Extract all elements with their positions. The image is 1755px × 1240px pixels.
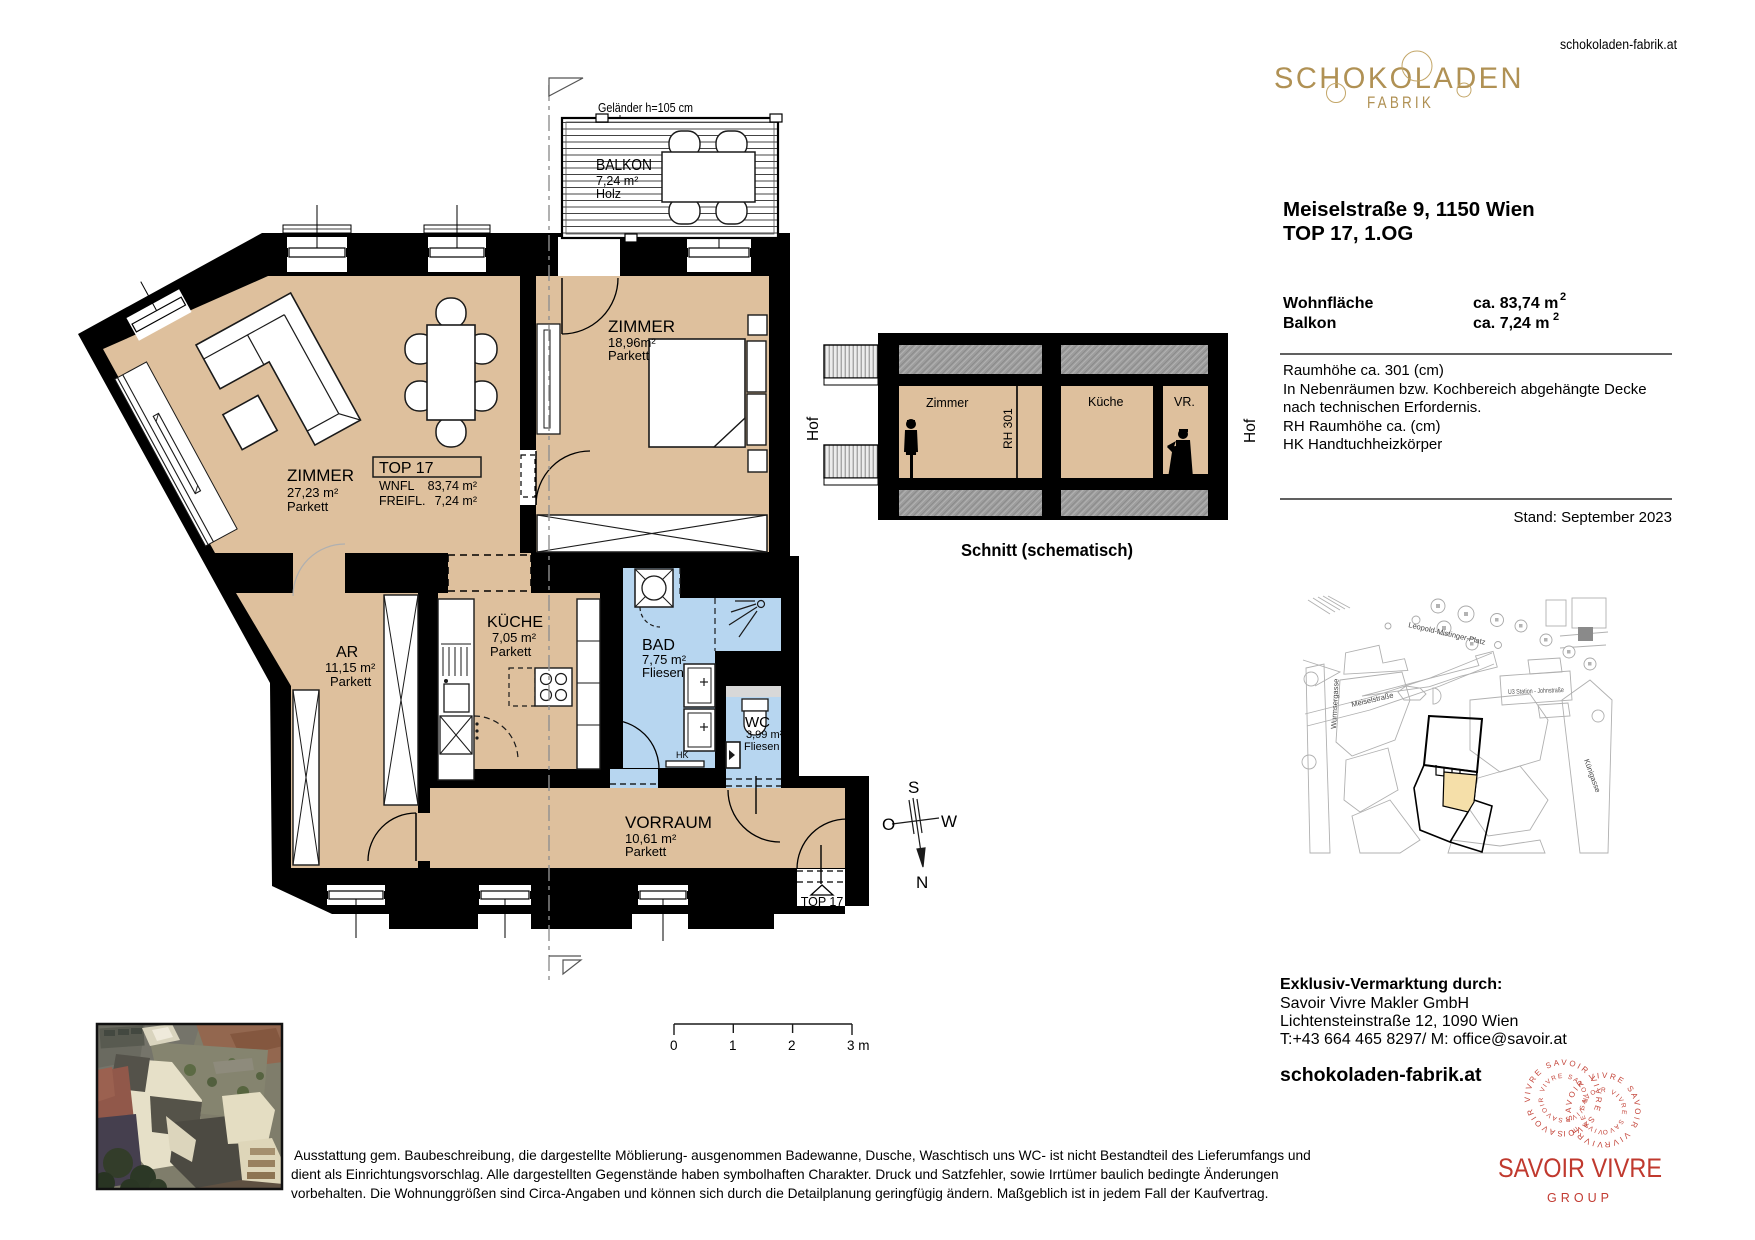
svg-text:Fliesen: Fliesen [744, 741, 779, 753]
svg-text:2: 2 [788, 1038, 796, 1053]
svg-text:TOP 17, 1.OG: TOP 17, 1.OG [1283, 222, 1413, 245]
svg-text:Exklusiv-Vermarktung durch:: Exklusiv-Vermarktung durch: [1280, 976, 1502, 993]
svg-text:In Nebenräumen bzw. Kochbereic: In Nebenräumen bzw. Kochbereich abgehäng… [1283, 381, 1647, 398]
svg-text:Savoir Vivre Makler GmbH: Savoir Vivre Makler GmbH [1280, 995, 1469, 1012]
svg-text:dient als Einrichtungsvorschla: dient als Einrichtungsvorschlag. Alle da… [291, 1167, 1279, 1182]
svg-text:1: 1 [729, 1038, 737, 1053]
svg-text:2: 2 [1553, 311, 1559, 323]
svg-text:TOP 17: TOP 17 [379, 460, 434, 477]
svg-text:S: S [908, 778, 919, 797]
svg-text:0: 0 [670, 1038, 678, 1053]
svg-text:ZIMMER: ZIMMER [608, 317, 675, 336]
svg-text:KÜCHE: KÜCHE [487, 613, 543, 631]
svg-text:N: N [916, 873, 928, 892]
svg-text:TOP 17: TOP 17 [801, 895, 844, 909]
svg-text:T:+43 664 465 8297/ M: office@: T:+43 664 465 8297/ M: office@savoir.at [1280, 1031, 1567, 1048]
svg-text:27,23 m²: 27,23 m² [287, 485, 339, 500]
svg-text:GROUP: GROUP [1547, 1191, 1613, 1205]
svg-text:Hof: Hof [805, 416, 822, 441]
svg-text:Meiselstraße 9, 1150 Wien: Meiselstraße 9, 1150 Wien [1283, 198, 1535, 221]
svg-text:RH 301: RH 301 [1001, 408, 1015, 449]
svg-text:Geländer h=105 cm: Geländer h=105 cm [598, 101, 693, 115]
svg-text:schokoladen-fabrik.at: schokoladen-fabrik.at [1560, 37, 1677, 52]
svg-text:vorbehalten. Die Wohnunggrößen: vorbehalten. Die Wohnunggrößen sind Circ… [291, 1186, 1268, 1201]
svg-text:O: O [882, 815, 895, 834]
svg-text:7,05 m²: 7,05 m² [492, 630, 537, 645]
svg-text:3 m: 3 m [847, 1038, 870, 1053]
svg-text:FREIFL.: FREIFL. [379, 494, 426, 508]
svg-text:Lichtensteinstraße 12, 1090 Wi: Lichtensteinstraße 12, 1090 Wien [1280, 1013, 1518, 1030]
svg-text:SCHOKOLADEN: SCHOKOLADEN [1274, 62, 1524, 95]
svg-text:Raumhöhe ca. 301 (cm): Raumhöhe ca. 301 (cm) [1283, 362, 1444, 379]
svg-text:nach technischen Erfordernis.: nach technischen Erfordernis. [1283, 399, 1481, 416]
svg-text:VR.: VR. [1174, 395, 1195, 409]
svg-text:AR: AR [336, 644, 358, 661]
svg-text:Parkett: Parkett [330, 674, 372, 689]
svg-text:VORRAUM: VORRAUM [625, 813, 712, 832]
svg-text:HK Handtuchheizkörper: HK Handtuchheizkörper [1283, 436, 1442, 453]
svg-text:7,24 m²: 7,24 m² [596, 174, 638, 188]
svg-text:ca. 7,24 m: ca. 7,24 m [1473, 315, 1550, 332]
svg-text:Fliesen: Fliesen [642, 665, 684, 680]
svg-text:Parkett: Parkett [287, 499, 329, 514]
svg-text:RH Raumhöhe ca. (cm): RH Raumhöhe ca. (cm) [1283, 418, 1441, 435]
svg-text:Balkon: Balkon [1283, 315, 1336, 332]
svg-text:W: W [941, 812, 957, 831]
svg-text:Parkett: Parkett [490, 644, 532, 659]
svg-text:Wohnfläche: Wohnfläche [1283, 295, 1373, 312]
svg-text:Holz: Holz [596, 187, 621, 201]
svg-text:Stand: September 2023: Stand: September 2023 [1514, 509, 1672, 526]
svg-text:WNFL: WNFL [379, 479, 414, 493]
svg-text:Küche: Küche [1088, 395, 1123, 409]
svg-text:83,74 m²: 83,74 m² [428, 479, 477, 493]
svg-text:Parkett: Parkett [608, 348, 650, 363]
svg-text:Zimmer: Zimmer [926, 396, 968, 410]
svg-text:3,99 m²: 3,99 m² [746, 729, 784, 741]
svg-text:Parkett: Parkett [625, 844, 667, 859]
svg-text:schokoladen-fabrik.at: schokoladen-fabrik.at [1280, 1064, 1482, 1086]
svg-text:BALKON: BALKON [596, 157, 652, 174]
svg-text:FABRIK: FABRIK [1367, 93, 1434, 112]
svg-text:ca. 83,74 m: ca. 83,74 m [1473, 295, 1558, 312]
svg-text:11,15 m²: 11,15 m² [325, 660, 376, 675]
svg-text:Schnitt (schematisch): Schnitt (schematisch) [961, 540, 1133, 560]
svg-text:Ausstattung gem. Baubeschreibu: Ausstattung gem. Baubeschreibung, die da… [294, 1148, 1311, 1163]
svg-text:2: 2 [1560, 291, 1566, 303]
svg-text:HK: HK [676, 750, 689, 760]
svg-text:ZIMMER: ZIMMER [287, 466, 354, 485]
svg-text:Hof: Hof [1242, 418, 1259, 443]
svg-text:7,24 m²: 7,24 m² [435, 494, 477, 508]
svg-text:SAVOIR VIVRE: SAVOIR VIVRE [1498, 1153, 1662, 1183]
